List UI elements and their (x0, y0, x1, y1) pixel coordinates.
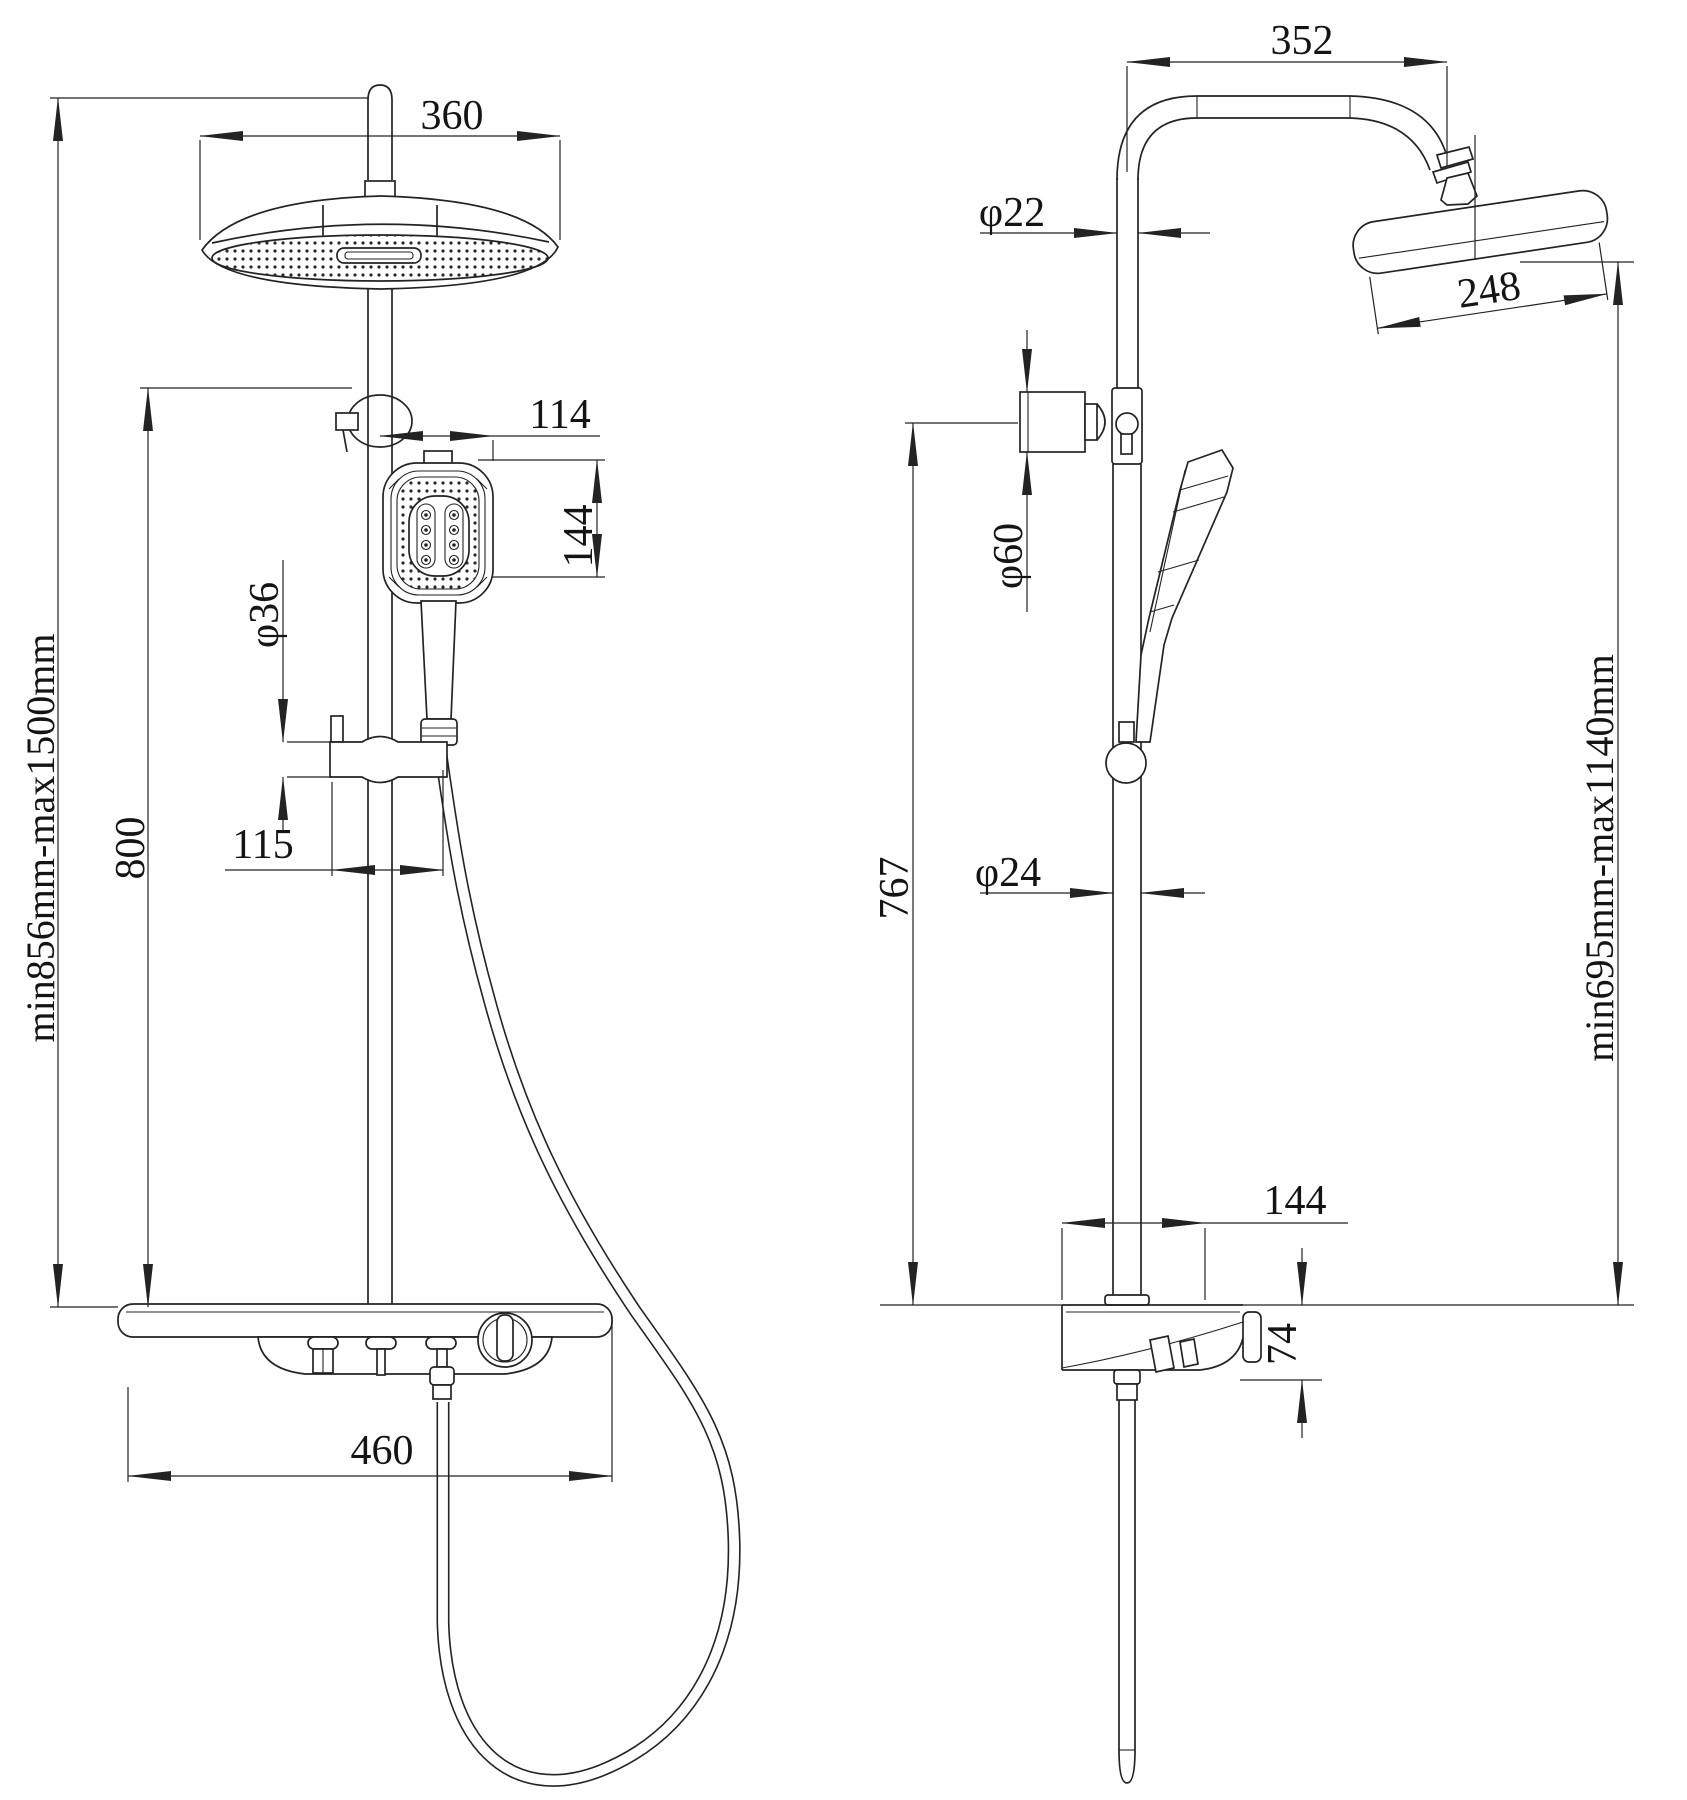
shower-system-drawing: 248 (0, 0, 1687, 1800)
shelf-button-1 (308, 1337, 338, 1349)
pivot-lever (336, 413, 358, 430)
dim-shelf-width: 460 (351, 1428, 414, 1474)
hose-outlet-swivel (430, 1367, 454, 1385)
hand-shower-handle (421, 601, 456, 719)
dim-hand-shower-width: 114 (529, 392, 590, 438)
shower-hose-side (1114, 1370, 1140, 1783)
pole-foot (1105, 1295, 1149, 1305)
shelf-button-2-stem (377, 1349, 385, 1375)
shelf-dial-handle (497, 1315, 513, 1361)
dim-wall-mount-diameter: φ60 (986, 523, 1032, 589)
front-view (118, 85, 734, 1780)
hose-outlet-nut (433, 1385, 451, 1399)
dim-slider-diameter: φ36 (242, 582, 288, 648)
front-dimensions: 360 min856mm-max1500mm 800 114 144 φ36 1… (18, 93, 612, 1482)
dim-pole-diameter: φ24 (975, 850, 1041, 896)
shelf-side (1062, 1295, 1261, 1372)
dim-riser-pipe-diameter: φ22 (979, 190, 1045, 236)
side-pole (1113, 464, 1141, 1295)
bar-pivot (336, 395, 412, 452)
dim-mount-to-shelf-height: 767 (872, 857, 918, 920)
dim-head-width: 360 (421, 93, 484, 139)
shelf-front (118, 1304, 612, 1399)
dim-slide-bar-height: 800 (108, 817, 154, 880)
dim-head-height-range: min695mm-max1140mm (1577, 654, 1622, 1061)
holder-ball (1106, 743, 1146, 783)
dial-edge (1150, 1336, 1174, 1372)
shelf-button-2 (366, 1337, 396, 1349)
side-view: 248 (1020, 96, 1620, 1783)
wall-mount (1020, 388, 1142, 464)
clamp-knob (1116, 413, 1138, 435)
dim-head-diameter: 248 (1454, 263, 1523, 318)
overhead-shower-head (202, 196, 558, 289)
dim-overall-height-range: min856mm-max1500mm (18, 634, 63, 1043)
technical-drawing-page: 248 (0, 0, 1687, 1800)
shower-hose-front (440, 748, 734, 1780)
slider-release-tab (331, 716, 343, 742)
hose-outlet-stem (437, 1349, 447, 1367)
shelf-button-3 (426, 1337, 456, 1349)
hand-shower-front (383, 451, 493, 745)
dim-shelf-thickness: 74 (1260, 1323, 1306, 1365)
dim-hand-shower-height: 144 (556, 505, 602, 568)
head-mount (1441, 173, 1477, 205)
holder-neck (1119, 722, 1134, 742)
hand-shower-side (1106, 450, 1233, 783)
dim-arm-reach: 352 (1271, 18, 1334, 64)
dim-slider-offset: 115 (232, 822, 293, 868)
dim-shelf-depth: 144 (1264, 1178, 1327, 1224)
overhead-center-slot (337, 248, 421, 263)
